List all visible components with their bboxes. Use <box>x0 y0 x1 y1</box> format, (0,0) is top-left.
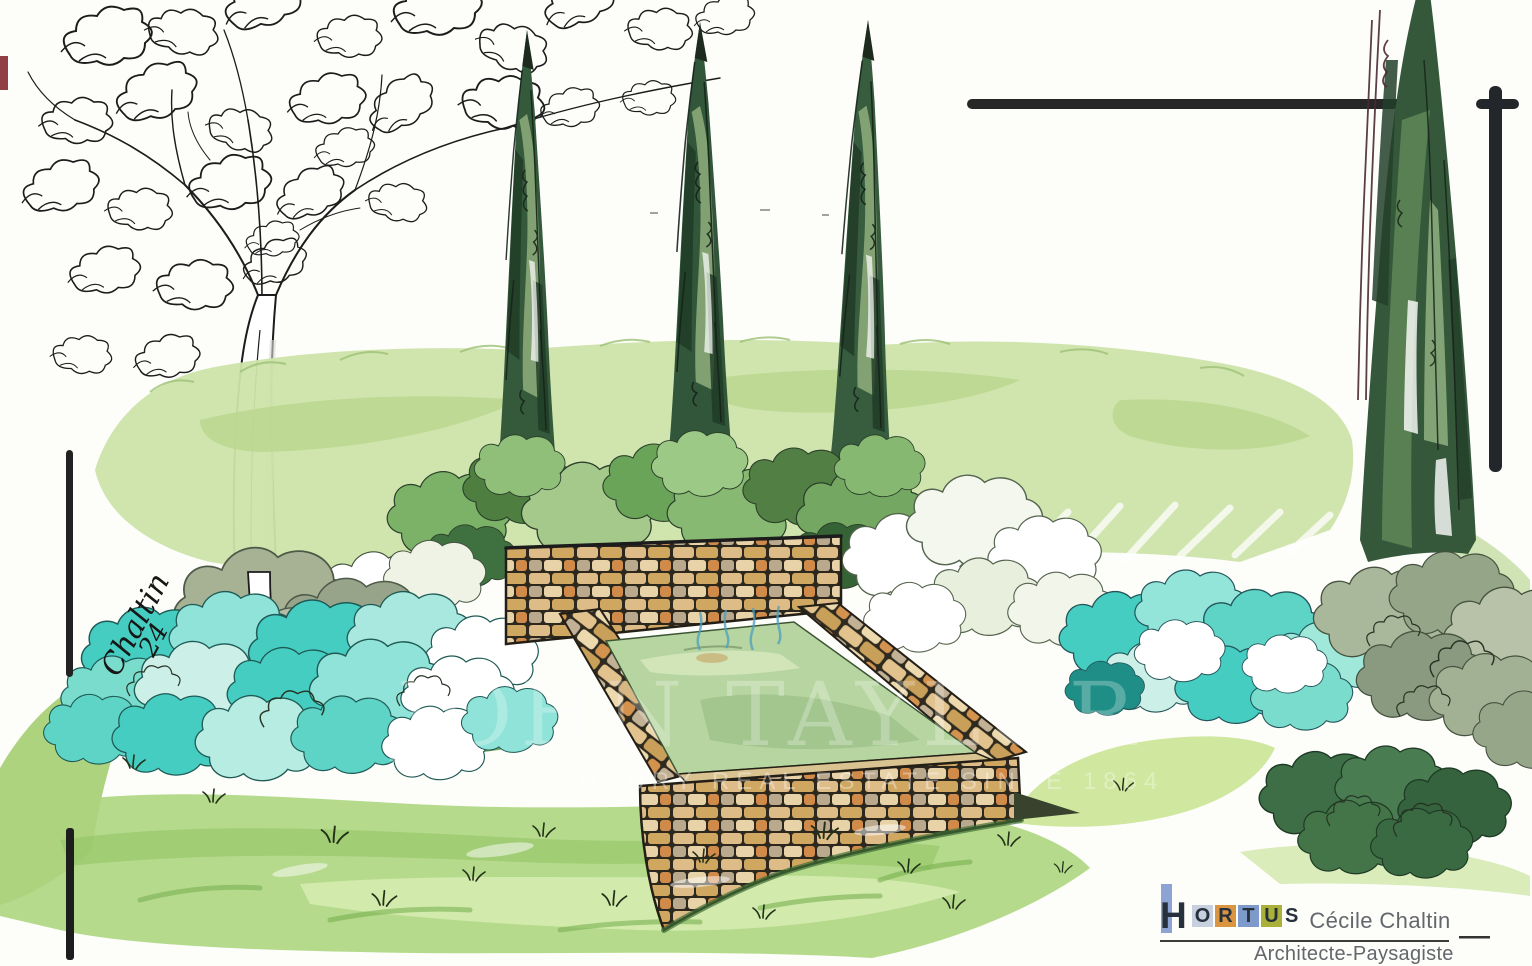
logo-letter-s: S <box>1285 905 1298 928</box>
logo-letter-u: U <box>1261 905 1282 927</box>
watermark-title: JOHN TAYLOR <box>389 663 1143 766</box>
logo-letter-h: H <box>1160 895 1187 936</box>
crop-mark-bottom-left-bar <box>66 828 74 960</box>
cypress-large <box>1358 0 1476 562</box>
watermark: JOHN TAYLOR LUXURY REAL ESTATE SINCE 186… <box>389 663 1164 795</box>
crop-mark-top-line <box>967 99 1407 109</box>
ink-tree-canopy <box>19 0 755 380</box>
architect-title: Architecte-Paysagiste <box>1254 943 1532 966</box>
garden-illustration: Chaltin 24 JOHN TAYLOR LUXURY REAL ESTAT… <box>0 0 1532 960</box>
watermark-tagline: LUXURY REAL ESTATE SINCE 1864 <box>560 768 1165 795</box>
ink-tree-branches <box>28 30 720 300</box>
logo-letter-t: T <box>1238 905 1259 927</box>
architect-name: Cécile Chaltin <box>1309 908 1450 934</box>
logo-underline <box>1160 940 1449 942</box>
cypress-2 <box>669 22 732 452</box>
cypress-1 <box>499 30 556 460</box>
logo-letter-r: R <box>1215 905 1236 927</box>
hortus-logo: H O R T U S Cécile Chaltin Architecte-Pa… <box>1160 899 1532 966</box>
crop-mark-left-bar <box>66 450 73 677</box>
crop-mark-top-right-cross <box>1476 86 1519 472</box>
red-edge-mark <box>0 56 8 90</box>
hortus-wordmark: H O R T U S <box>1160 899 1298 933</box>
watercolor-sketch: Chaltin 24 JOHN TAYLOR LUXURY REAL ESTAT… <box>0 0 1532 960</box>
logo-letter-o: O <box>1192 905 1213 927</box>
